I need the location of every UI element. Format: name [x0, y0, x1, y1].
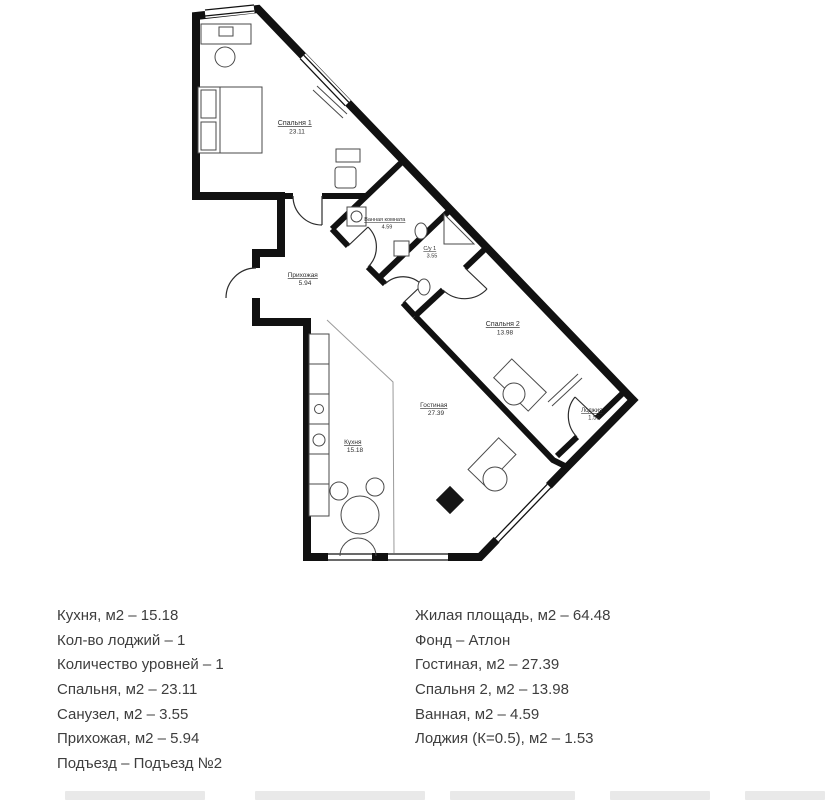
bottom-bar-segment — [450, 791, 575, 800]
bedroom2-chair — [503, 383, 525, 405]
detail-kitchen-area: Кухня, м2 – 15.18 — [57, 604, 224, 629]
bottom-bar-segment — [745, 791, 825, 800]
detail-loggia-count: Кол-во лоджий – 1 — [57, 629, 224, 654]
details-left-column: Кухня, м2 – 15.18 Кол-во лоджий – 1 Коли… — [57, 604, 224, 777]
detail-livingroom-area: Гостиная, м2 – 27.39 — [415, 653, 610, 678]
living-chair — [483, 467, 507, 491]
bottom-cropped-bar — [55, 791, 835, 800]
bottom-bar-segment — [65, 791, 205, 800]
detail-bedroom-area: Спальня, м2 – 23.11 — [57, 678, 224, 703]
detail-bedroom2-area: Спальня 2, м2 – 13.98 — [415, 678, 610, 703]
bedroom1-side-table — [336, 149, 360, 162]
bedroom1-desk — [201, 24, 251, 44]
detail-hallway-area: Прихожая, м2 – 5.94 — [57, 727, 224, 752]
bedroom1-bed — [198, 87, 262, 153]
bottom-bar-segment — [255, 791, 425, 800]
floor-plan-svg: Спальня 1 23.11 Ванная комната 4.59 С/у … — [0, 0, 839, 575]
detail-fund: Фонд – Атлон — [415, 629, 610, 654]
bathroom-sink — [394, 241, 409, 256]
detail-living-space: Жилая площадь, м2 – 64.48 — [415, 604, 610, 629]
kitchen-counter — [309, 334, 329, 516]
details-right-column: Жилая площадь, м2 – 64.48 Фонд – Атлон Г… — [415, 604, 610, 752]
bedroom1-armchair — [335, 167, 356, 188]
detail-loggia-area: Лоджия (К=0.5), м2 – 1.53 — [415, 727, 610, 752]
detail-bathroom-area: Ванная, м2 – 4.59 — [415, 703, 610, 728]
detail-wc-area: Санузел, м2 – 3.55 — [57, 703, 224, 728]
bottom-bar-segment — [610, 791, 710, 800]
bedroom1-chair — [215, 47, 235, 67]
detail-entrance: Подъезд – Подъезд №2 — [57, 752, 224, 777]
floor-plan: Спальня 1 23.11 Ванная комната 4.59 С/у … — [0, 0, 839, 575]
detail-level-count: Количество уровней – 1 — [57, 653, 224, 678]
wc-toilet — [418, 279, 430, 295]
bathroom-washer — [347, 207, 366, 226]
bathroom-toilet — [415, 223, 427, 239]
